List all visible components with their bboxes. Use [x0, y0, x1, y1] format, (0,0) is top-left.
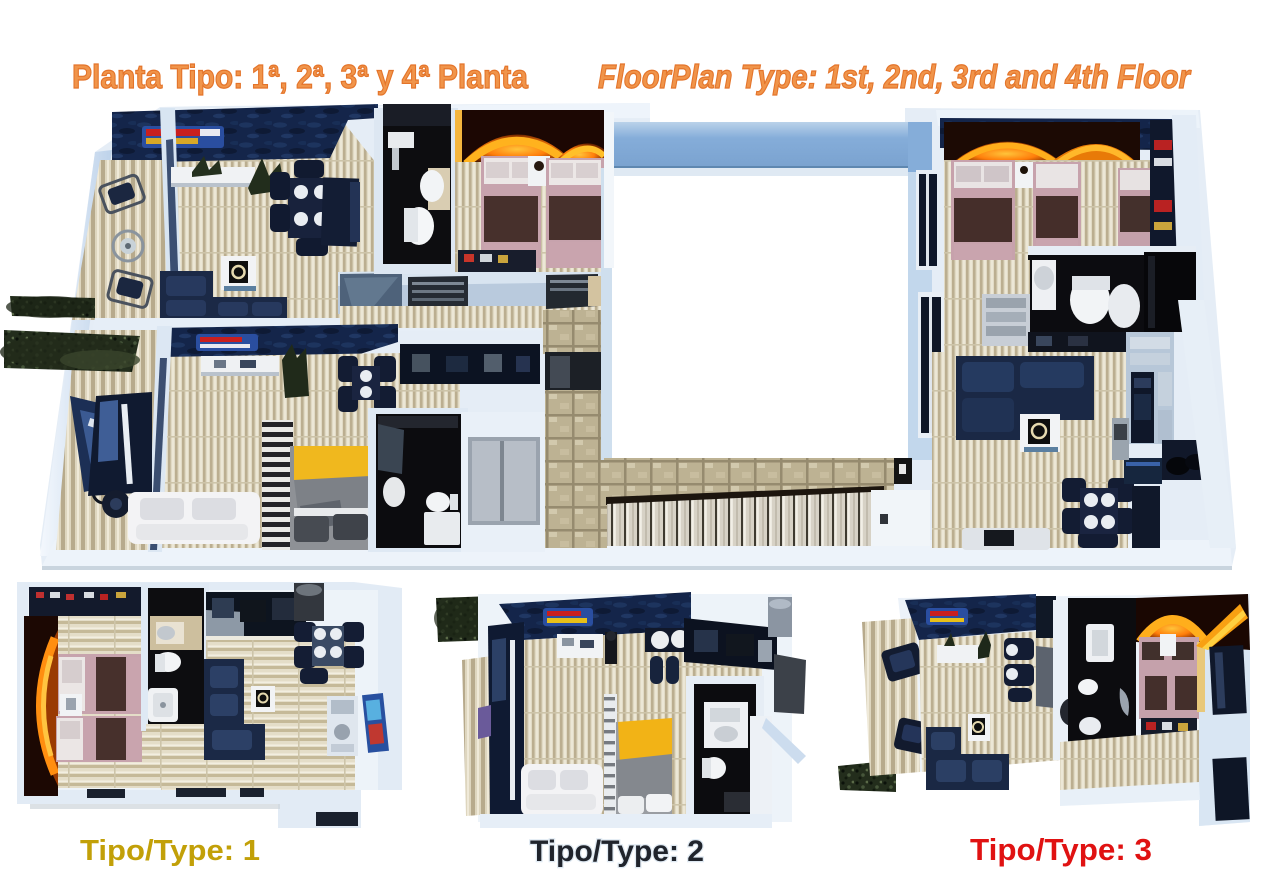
svg-text:FloorPlan Type: 1st, 2nd, 3rd: FloorPlan Type: 1st, 2nd, 3rd and 4th Fl…	[598, 58, 1192, 95]
svg-text:Tipo/Type: 1: Tipo/Type: 1	[80, 835, 260, 867]
svg-text:Tipo/Type: 2: Tipo/Type: 2	[530, 835, 704, 868]
svg-text:Tipo/Type: 3: Tipo/Type: 3	[970, 832, 1152, 867]
svg-text:Planta Tipo: 1ª, 2ª, 3ª y 4ª P: Planta Tipo: 1ª, 2ª, 3ª y 4ª Planta	[72, 58, 529, 95]
